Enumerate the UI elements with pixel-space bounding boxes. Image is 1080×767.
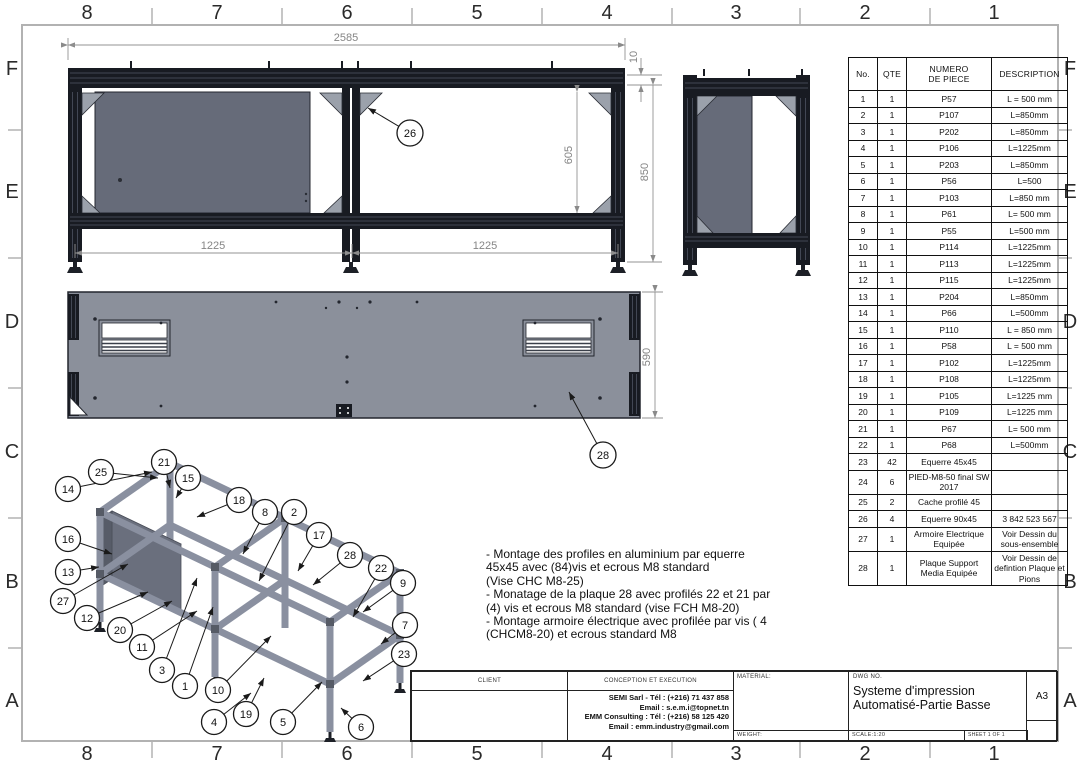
bom-cell: L=850mm [992,289,1068,306]
svg-text:7: 7 [402,620,408,632]
balloon-19: 19 [234,678,265,727]
table-row: 171P102L=1225mm [849,355,1068,372]
bom-cell: Voir Dessin de defintion Plaque et Pions [992,551,1068,586]
bom-cell: L=1225mm [992,355,1068,372]
bom-cell: 16 [849,338,878,355]
table-row: 111P113L=1225mm [849,256,1068,273]
bom-cell: 28 [849,551,878,586]
dwg-label: DWG NO. [853,674,1022,680]
leveling-feet [67,262,626,273]
bom-table: No. QTE NUMERO DE PIECE DESCRIPTION 11P5… [848,57,1068,586]
bom-cell: Cache profilé 45 [907,494,992,511]
drawing-sheet: 8 7 6 5 4 3 2 1 8 7 6 5 4 3 2 1 F E D C … [0,0,1080,767]
bom-cell: 26 [849,511,878,528]
balloon-23: 23 [363,642,417,682]
bom-cell: L=500mm [992,305,1068,322]
dim-850: 850 [639,163,651,181]
bom-cell [992,454,1068,471]
bom-cell: 1 [878,157,907,174]
bom-cell: 5 [849,157,878,174]
svg-text:16: 16 [62,534,74,546]
bom-cell: 1 [878,421,907,438]
table-row: 11P57L = 500 mm [849,91,1068,108]
svg-text:8: 8 [262,507,268,519]
table-row: 121P115L=1225mm [849,272,1068,289]
vent-slot-left [99,320,170,356]
bom-cell: 1 [878,404,907,421]
table-row: 281Plaque Support Media EquipéeVoir Dess… [849,551,1068,586]
table-row: 161P58L = 500 mm [849,338,1068,355]
bom-cell: P110 [907,322,992,339]
svg-text:23: 23 [398,649,410,661]
bom-cell: 1 [878,305,907,322]
svg-text:25: 25 [95,467,107,479]
svg-text:10: 10 [212,685,224,697]
table-row: 246PIED-M8-50 final SW 2017 [849,470,1068,494]
client-cell: CLIENT [411,671,568,741]
bom-cell: Voir Dessin du sous-ensemble [992,527,1068,551]
svg-text:19: 19 [240,709,252,721]
bom-cell: P114 [907,239,992,256]
table-row: 151P110L = 850 mm [849,322,1068,339]
svg-text:17: 17 [313,530,325,542]
bom-cell: 6 [849,173,878,190]
bom-cell: 21 [849,421,878,438]
table-row: 41P106L=1225mm [849,140,1068,157]
bom-cell: 2 [878,494,907,511]
note-line: - Monatage de la plaque 28 avec profilés… [486,588,822,601]
svg-text:18: 18 [233,495,245,507]
dwg-cell: DWG NO. Systeme d'impression Automatisé-… [848,671,1027,731]
bom-cell: 1 [878,91,907,108]
note-line: - Montage armoire électrique avec profil… [486,615,822,628]
bom-cell: 42 [878,454,907,471]
bom-cell: 1 [878,272,907,289]
bom-cell: L=1225mm [992,239,1068,256]
table-row: 2342Equerre 45x45 [849,454,1068,471]
dim-590: 590 [641,348,653,366]
note-line: 45x45 avec (84)vis et ecrous M8 standard [486,561,822,574]
bom-cell: 24 [849,470,878,494]
bom-cell: 1 [878,239,907,256]
bom-cell: P102 [907,355,992,372]
bom-header-qte: QTE [878,58,907,91]
isometric-view: 14 25 21 15 18 16 13 27 12 20 11 8 2 17 … [51,450,418,743]
table-row: 201P109L=1225 mm [849,404,1068,421]
paper-size-subcell [1026,720,1058,741]
conception-label: CONCEPTION ET EXECUTION [568,672,733,691]
table-row: 51P203L=850mm [849,157,1068,174]
table-row: 191P105L=1225 mm [849,388,1068,405]
svg-text:13: 13 [62,567,74,579]
bom-cell: 6 [878,470,907,494]
bom-cell: 1 [878,190,907,207]
bom-cell: L = 850 mm [992,322,1068,339]
note-line: (CHCM8-20) et ecrous standard M8 [486,628,822,641]
bom-cell: 1 [878,388,907,405]
bom-cell: 9 [849,223,878,240]
svg-text:11: 11 [136,642,147,654]
balloon-15: 15 [176,466,201,499]
bom-cell: 20 [849,404,878,421]
table-row: 271Armoire Electrique EquipéeVoir Dessin… [849,527,1068,551]
table-row: 101P114L=1225mm [849,239,1068,256]
assembly-notes: - Montage des profiles en aluminium par … [486,548,822,642]
table-row: 181P108L=1225mm [849,371,1068,388]
dim-1225-left: 1225 [201,240,225,252]
svg-text:20: 20 [114,625,126,637]
bom-cell: L=500mm [992,437,1068,454]
bom-cell: 1 [878,527,907,551]
bom-cell: 3 842 523 567 [992,511,1068,528]
bom-cell: 23 [849,454,878,471]
balloon-28-iso: 28 [313,543,363,586]
bom-cell: P202 [907,124,992,141]
title-block: CLIENT CONCEPTION ET EXECUTION SEMI Sarl… [410,670,1057,742]
conception-cell: CONCEPTION ET EXECUTION SEMI Sarl - Tél … [567,671,734,741]
bom-cell: 1 [878,289,907,306]
bom-cell: 1 [878,322,907,339]
table-row: 91P55L=500 mm [849,223,1068,240]
front-view: 2585 1225 1225 605 10 850 [67,32,662,273]
note-line: (Vise CHC M8-25) [486,575,822,588]
balloon-13: 13 [56,560,100,585]
bom-cell: L=500 [992,173,1068,190]
bom-cell: 2 [849,107,878,124]
dim-605: 605 [563,146,575,164]
svg-text:1: 1 [182,681,188,693]
bom-cell: 1 [878,256,907,273]
svg-text:3: 3 [159,665,165,677]
bom-cell: 18 [849,371,878,388]
bom-cell: P204 [907,289,992,306]
balloon-22: 22 [353,556,394,618]
bom-cell: L=1225 mm [992,388,1068,405]
bom-cell: 1 [878,140,907,157]
bom-cell: PIED-M8-50 final SW 2017 [907,470,992,494]
bom-cell: 1 [878,173,907,190]
bom-cell: P68 [907,437,992,454]
bom-cell: 1 [878,223,907,240]
svg-text:9: 9 [400,578,406,590]
bom-cell: 12 [849,272,878,289]
bom-cell: 25 [849,494,878,511]
bom-cell: 1 [878,107,907,124]
bom-cell: 13 [849,289,878,306]
cabinet-panel-side [697,96,752,235]
bom-cell: P107 [907,107,992,124]
svg-text:6: 6 [358,722,364,734]
drawing-title-line1: Systeme d'impression [853,684,1022,698]
bom-cell: 8 [849,206,878,223]
sheet-cell: SHEET 1 OF 1 [964,730,1028,741]
dim-1225-right: 1225 [473,240,497,252]
material-cell: MATERIAL: [733,671,849,731]
dim-10: 10 [628,51,640,63]
client-label: CLIENT [412,672,567,691]
bom-cell: P113 [907,256,992,273]
bom-header-no: No. [849,58,878,91]
svg-text:4: 4 [211,717,217,729]
bom-cell: L=1225mm [992,272,1068,289]
paper-size-cell: A3 [1026,671,1058,721]
table-row: 221P68L=500mm [849,437,1068,454]
bom-cell: 11 [849,256,878,273]
drawing-title-line2: Automatisé-Partie Basse [853,698,1022,712]
bom-cell: P58 [907,338,992,355]
bom-cell: L=850 mm [992,190,1068,207]
bom-cell: L=1225mm [992,140,1068,157]
bom-cell: P56 [907,173,992,190]
bom-cell: L=1225mm [992,371,1068,388]
bom-cell: 15 [849,322,878,339]
bom-cell: P105 [907,388,992,405]
side-view [682,69,811,276]
bom-cell: 1 [878,371,907,388]
bom-cell: L=1225mm [992,256,1068,273]
support-plate [68,292,640,418]
svg-text:2: 2 [291,507,297,519]
balloon-6: 6 [341,708,374,740]
bom-cell: L=850mm [992,107,1068,124]
svg-text:26: 26 [404,128,416,140]
svg-text:27: 27 [57,596,69,608]
bom-cell: P67 [907,421,992,438]
bom-cell: 1 [878,338,907,355]
table-row: 131P204L=850mm [849,289,1068,306]
table-row: 81P61L= 500 mm [849,206,1068,223]
bom-cell: 4 [878,511,907,528]
bom-cell: 1 [878,355,907,372]
dim-2585: 2585 [334,32,358,44]
bom-cell: L = 500 mm [992,91,1068,108]
table-row: 252Cache profilé 45 [849,494,1068,511]
bom-cell: 3 [849,124,878,141]
bom-header-row: No. QTE NUMERO DE PIECE DESCRIPTION [849,58,1068,91]
company-line: EMM Consulting : Tél : (+216) 58 125 420 [568,712,729,722]
bom-cell: L=850mm [992,157,1068,174]
bom-body: 11P57L = 500 mm21P107L=850mm31P202L=850m… [849,91,1068,586]
table-row: 211P67L= 500 mm [849,421,1068,438]
bom-cell: L=1225 mm [992,404,1068,421]
svg-text:5: 5 [280,717,286,729]
bom-cell: 4 [849,140,878,157]
table-row: 21P107L=850mm [849,107,1068,124]
company-line: Email : s.e.m.i@topnet.tn [568,703,729,713]
company-line: SEMI Sarl - Tél : (+216) 71 437 858 [568,693,729,703]
bom-header-desc: DESCRIPTION [992,58,1068,91]
svg-text:12: 12 [81,613,93,625]
plan-dimensions: 590 [641,292,663,418]
bom-cell: P115 [907,272,992,289]
bom-cell: L= 500 mm [992,421,1068,438]
bom-cell: Armoire Electrique Equipée [907,527,992,551]
bom-cell: 19 [849,388,878,405]
svg-text:22: 22 [375,563,387,575]
note-line: (4) vis et ecrous M8 standard (vise FCH … [486,602,822,615]
balloon-26: 26 [368,108,423,146]
table-row: 71P103L=850 mm [849,190,1068,207]
bom-cell: 17 [849,355,878,372]
bom-cell: P61 [907,206,992,223]
bom-header-num: NUMERO DE PIECE [907,58,992,91]
bom-cell: 1 [849,91,878,108]
bom-cell: P109 [907,404,992,421]
bom-cell: 22 [849,437,878,454]
bom-cell: P106 [907,140,992,157]
bom-cell: P203 [907,157,992,174]
plan-view: 590 28 [68,292,663,468]
bom-cell: L=850mm [992,124,1068,141]
svg-text:15: 15 [182,473,194,485]
bom-cell: 1 [878,437,907,454]
weight-cell: WEIGHT: [733,730,849,741]
bom-cell: P103 [907,190,992,207]
bom-cell: 27 [849,527,878,551]
svg-text:28: 28 [344,550,356,562]
bom-cell: 10 [849,239,878,256]
bom-cell: 1 [878,206,907,223]
svg-text:28: 28 [597,450,609,462]
table-row: 31P202L=850mm [849,124,1068,141]
bom-cell: P66 [907,305,992,322]
svg-text:14: 14 [62,484,74,496]
bom-cell: 14 [849,305,878,322]
bom-cell: Plaque Support Media Equipée [907,551,992,586]
bom-cell: P108 [907,371,992,388]
bom-cell: 1 [878,551,907,586]
bom-cell: 1 [878,124,907,141]
bom-cell: 7 [849,190,878,207]
note-line: - Montage des profiles en aluminium par … [486,548,822,561]
bom-cell: P55 [907,223,992,240]
bom-cell: L=500 mm [992,223,1068,240]
bom-cell [992,494,1068,511]
bom-cell: Equerre 45x45 [907,454,992,471]
table-row: 264Equerre 90x453 842 523 567 [849,511,1068,528]
bom-cell: L= 500 mm [992,206,1068,223]
bom-cell: Equerre 90x45 [907,511,992,528]
table-row: 141P66L=500mm [849,305,1068,322]
cabinet-panel-front [95,92,310,213]
bom-cell: P57 [907,91,992,108]
balloon-5: 5 [271,682,323,735]
svg-text:21: 21 [158,457,170,469]
table-row: 61P56L=500 [849,173,1068,190]
bom-cell: L = 500 mm [992,338,1068,355]
bom-cell [992,470,1068,494]
company-line: Email : emm.industry@gmail.com [568,722,729,732]
scale-cell: SCALE:1:20 [848,730,965,741]
vent-slot-right [523,320,594,356]
